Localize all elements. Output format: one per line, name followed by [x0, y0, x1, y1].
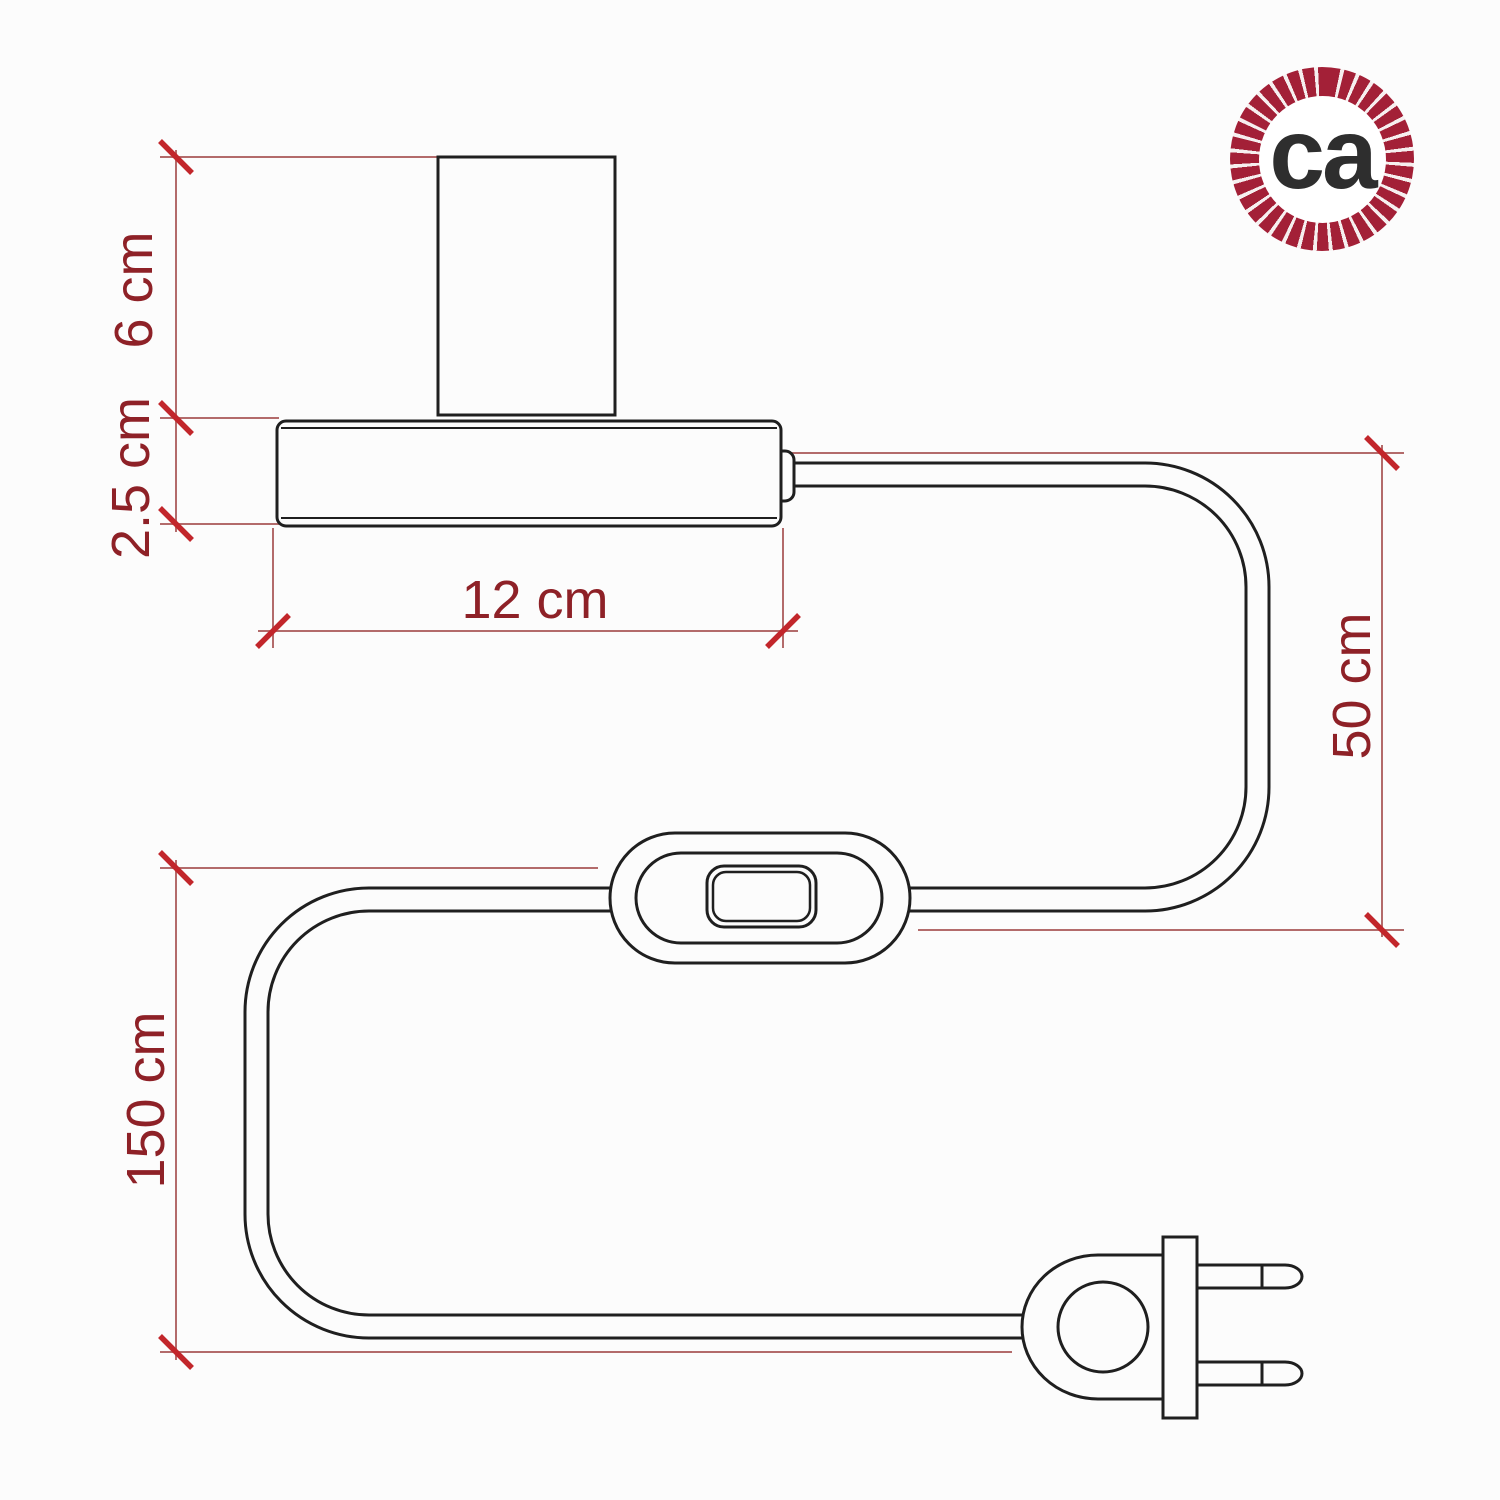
brand-logo: ca — [1230, 67, 1414, 251]
diagram-canvas: 6 cm 2.5 cm 12 cm 50 cm 150 cm ca — [0, 0, 1500, 1500]
lamp-base — [277, 421, 781, 526]
dim-label-socket-height: 6 cm — [107, 231, 161, 348]
power-plug — [1022, 1237, 1302, 1418]
brand-logo-text: ca — [1269, 97, 1374, 222]
plug-prong-bottom — [1197, 1362, 1302, 1385]
lamp-socket — [438, 157, 615, 415]
switch-button — [707, 866, 816, 927]
table-lamp — [277, 157, 794, 526]
dim-label-cable-total: 150 cm — [119, 1011, 173, 1188]
inline-switch — [610, 833, 910, 963]
dimension-lines — [160, 150, 1404, 1360]
dim-label-cable-drop: 50 cm — [1325, 612, 1379, 759]
dim-label-base-width: 12 cm — [461, 573, 608, 627]
plug-prong-top — [1197, 1265, 1302, 1288]
tick-marks — [160, 141, 1398, 1368]
plug-circle — [1058, 1282, 1148, 1372]
dim-label-base-height: 2.5 cm — [104, 397, 158, 559]
plug-face-plate — [1163, 1237, 1197, 1418]
